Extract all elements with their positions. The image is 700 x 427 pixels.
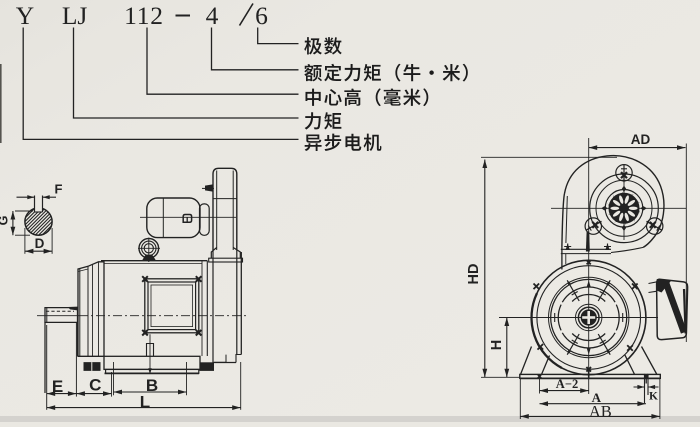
svg-text:AB: AB: [589, 402, 612, 421]
svg-text:E: E: [52, 377, 63, 396]
svg-text:G: G: [0, 216, 11, 226]
svg-text:6: 6: [255, 1, 268, 30]
svg-text:D: D: [35, 236, 45, 251]
svg-text:112: 112: [124, 1, 164, 30]
svg-text:K: K: [649, 391, 658, 403]
svg-text:Y: Y: [16, 1, 34, 30]
svg-text:L: L: [140, 393, 150, 412]
svg-text:F: F: [55, 182, 63, 197]
svg-text:H: H: [489, 340, 505, 350]
svg-text:AD: AD: [631, 132, 651, 147]
svg-text:HD: HD: [466, 264, 482, 285]
svg-text:C: C: [89, 376, 101, 395]
svg-text:LJ: LJ: [62, 1, 88, 30]
svg-text:A−2: A−2: [556, 377, 578, 391]
svg-text:4: 4: [206, 1, 219, 30]
